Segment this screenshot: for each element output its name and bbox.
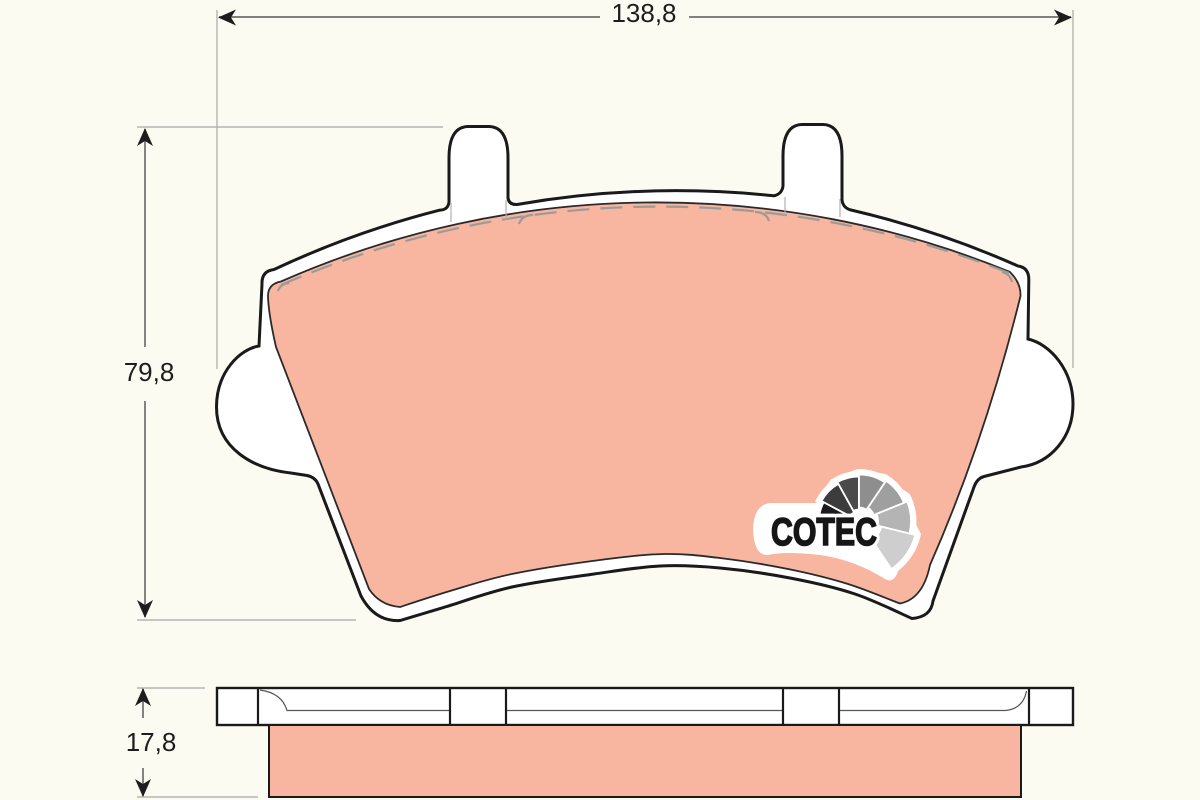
svg-text:17,8: 17,8 [126, 727, 177, 757]
svg-text:79,8: 79,8 [124, 357, 175, 387]
svg-text:COTEC: COTEC [771, 511, 877, 554]
svg-text:138,8: 138,8 [611, 0, 676, 28]
